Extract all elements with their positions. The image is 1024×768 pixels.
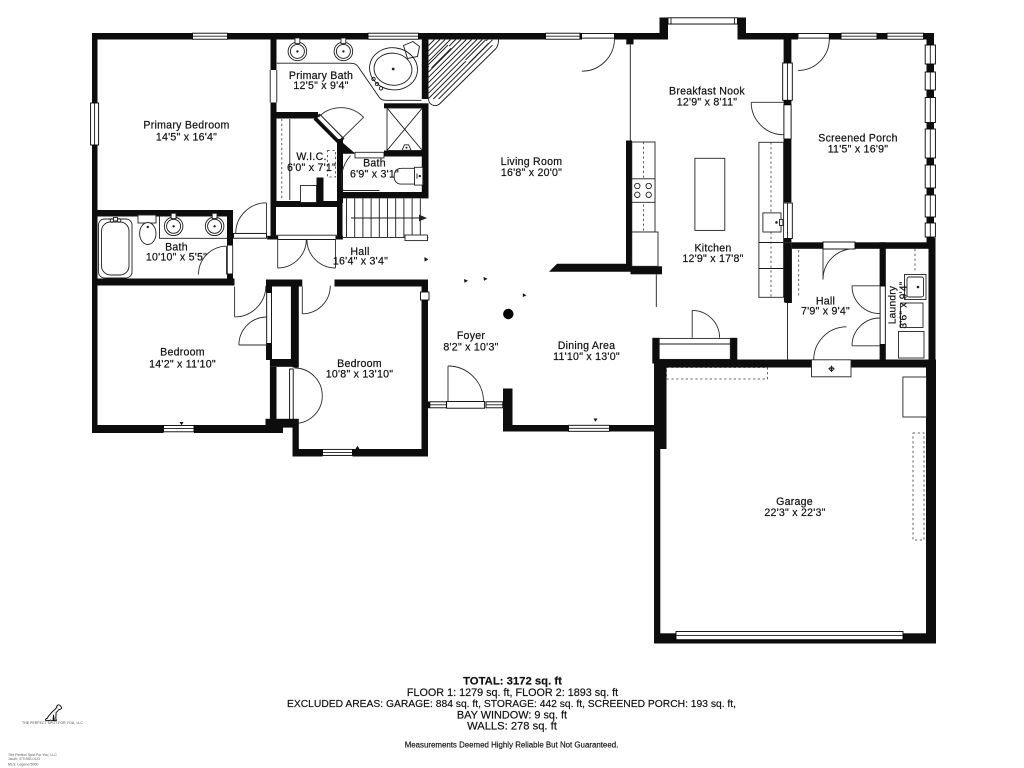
svg-text:11'10" x 13'0": 11'10" x 13'0"	[553, 351, 620, 363]
svg-text:WALLS: 278 sq. ft: WALLS: 278 sq. ft	[467, 721, 558, 733]
svg-text:22'3" x 22'3": 22'3" x 22'3"	[764, 507, 825, 519]
svg-text:8'2" x 10'3": 8'2" x 10'3"	[443, 342, 498, 354]
svg-text:14'2" x 11'10": 14'2" x 11'10"	[149, 359, 216, 371]
svg-text:Jacob: 479-555-0123: Jacob: 479-555-0123	[8, 757, 40, 761]
svg-text:16'8" x 20'0": 16'8" x 20'0"	[501, 167, 562, 179]
svg-text:Measurements Deemed Highly Rel: Measurements Deemed Highly Reliable But …	[405, 741, 619, 750]
svg-text:FLOOR 1: 1279 sq. ft, FLOOR 2:: FLOOR 1: 1279 sq. ft, FLOOR 2: 1893 sq. …	[407, 687, 618, 699]
svg-text:THE PERFECT SPOT FOR YOU, LLC: THE PERFECT SPOT FOR YOU, LLC	[22, 721, 83, 725]
svg-text:TOTAL: 3172 sq. ft: TOTAL: 3172 sq. ft	[463, 676, 562, 688]
svg-text:16'4" x 3'4": 16'4" x 3'4"	[333, 256, 388, 268]
svg-text:3'6" x 9'4": 3'6" x 9'4"	[899, 281, 910, 328]
svg-text:10'8" x 13'10": 10'8" x 13'10"	[326, 368, 394, 380]
svg-text:14'5" x 16'4": 14'5" x 16'4"	[156, 132, 217, 144]
svg-text:Laundry: Laundry	[888, 285, 899, 324]
svg-text:MLS: Legend 5000: MLS: Legend 5000	[8, 763, 38, 767]
svg-text:10'10" x 5'5": 10'10" x 5'5"	[146, 251, 207, 263]
svg-text:12'5" x 9'4": 12'5" x 9'4"	[293, 80, 348, 92]
svg-text:Living Room: Living Room	[501, 156, 563, 168]
svg-text:6'0" x 7'1": 6'0" x 7'1"	[287, 162, 336, 174]
svg-text:12'9" x 17'8": 12'9" x 17'8"	[682, 253, 743, 265]
svg-text:7'9" x 9'4": 7'9" x 9'4"	[801, 306, 850, 318]
svg-text:Primary Bedroom: Primary Bedroom	[143, 120, 229, 132]
svg-text:11'5" x 16'9": 11'5" x 16'9"	[828, 144, 889, 156]
svg-text:Foyer: Foyer	[457, 330, 486, 342]
svg-text:6'9" x 3'1": 6'9" x 3'1"	[350, 169, 399, 181]
svg-text:12'9" x 8'11": 12'9" x 8'11"	[677, 96, 738, 108]
svg-text:BAY WINDOW: 9 sq. ft: BAY WINDOW: 9 sq. ft	[457, 709, 567, 721]
svg-text:Bedroom: Bedroom	[160, 346, 205, 358]
